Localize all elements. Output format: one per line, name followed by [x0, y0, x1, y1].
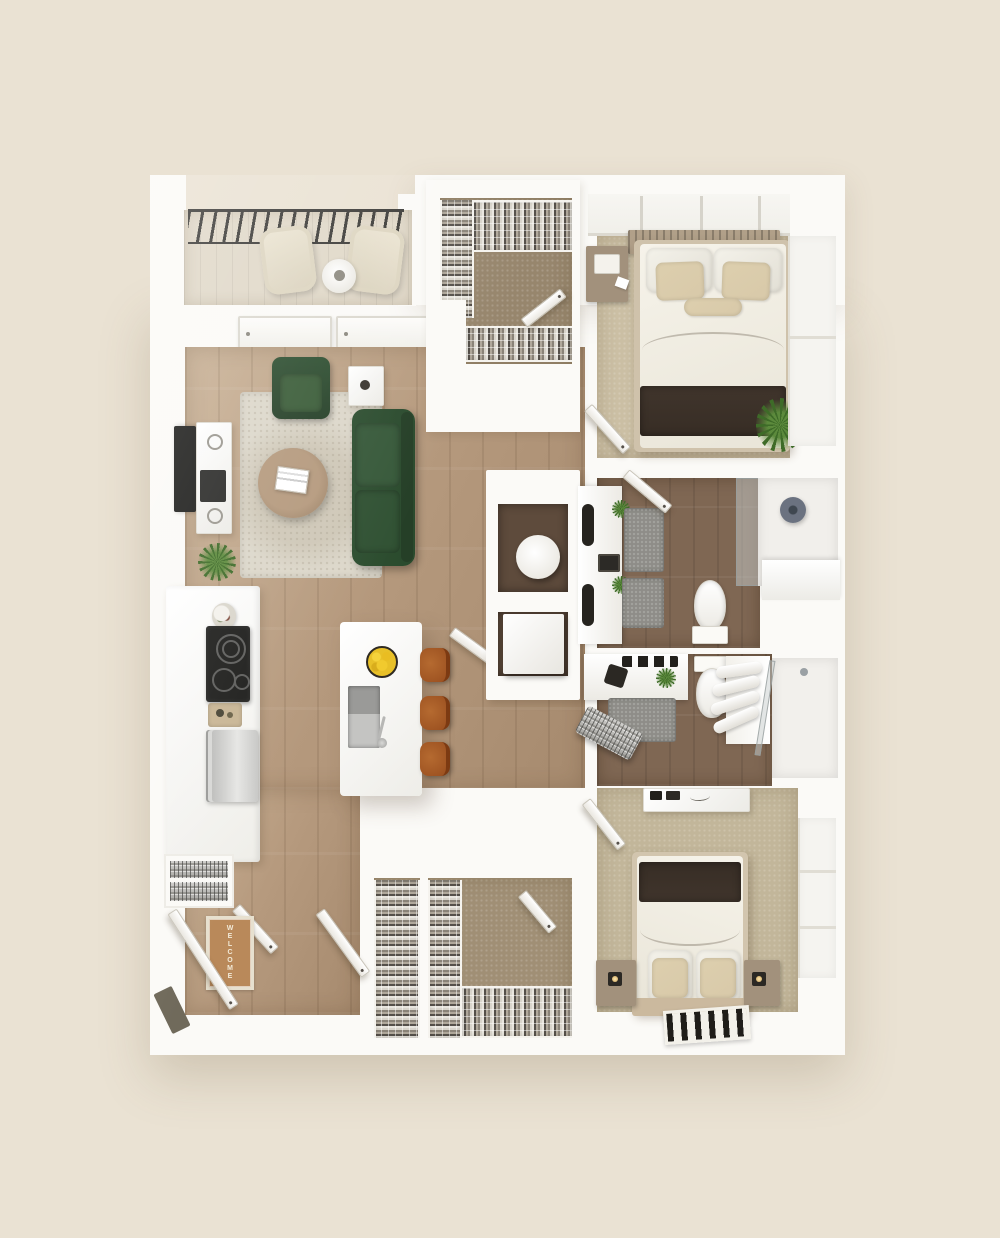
armchair-cushion	[280, 374, 322, 412]
bath-bottom-bottles	[622, 656, 678, 667]
sofa-cushion-top	[355, 423, 400, 487]
bath-bottom-plant	[656, 668, 676, 688]
sofa-cushion-bottom	[355, 490, 400, 553]
nightstand-top-tray	[594, 254, 620, 274]
living-plant	[198, 543, 236, 581]
floor-plan-render: WELCOME	[0, 0, 1000, 1238]
shower-top-head	[780, 497, 806, 523]
island-faucet-head	[377, 738, 387, 748]
console-speaker-bottom	[207, 508, 223, 524]
bath-top-toilet-bowl	[694, 580, 726, 630]
console-shelf-items	[200, 470, 226, 502]
bed-top-pillow-beige-left	[655, 261, 704, 301]
dresser-item-1	[650, 791, 662, 800]
shower-top-glass	[736, 478, 760, 586]
balcony-chair-right	[344, 224, 406, 296]
bar-stool-2	[420, 696, 450, 730]
closet-bottom-rack-bottom	[462, 986, 572, 1038]
bedroom-bottom-bay-sill-1	[798, 870, 836, 873]
pantry-shelf-top	[170, 861, 228, 878]
cutting-board-items	[216, 709, 224, 717]
closet-top-wall-bump	[426, 300, 466, 364]
fruit-bowl	[366, 646, 398, 678]
nook-round-table	[516, 535, 560, 579]
bed-top-lumbar-pillow	[684, 298, 742, 316]
tv	[174, 426, 196, 512]
bath-top-toilet-tank	[692, 626, 728, 644]
pantry-shelf-bottom	[170, 882, 228, 901]
bed-top-pillow-beige-right	[721, 261, 770, 301]
cooktop-burner-medium	[212, 668, 236, 692]
lamp-left	[608, 972, 622, 986]
living-window-left	[238, 316, 332, 351]
shower-bottom-floor	[772, 658, 838, 778]
bedroom-top-bay-sill	[788, 336, 836, 339]
closet-top-rack-bottom	[466, 326, 572, 362]
bar-stool-1	[420, 648, 450, 682]
balcony-table-decor	[334, 270, 345, 281]
side-table-decor	[360, 380, 370, 390]
bedroom-bottom-rug	[663, 1005, 751, 1045]
bedroom-top-window-bay	[788, 236, 836, 446]
nook-cabinet	[503, 614, 564, 674]
welcome-mat-text: WELCOME	[227, 925, 234, 981]
wall-pillar-top-left	[150, 175, 186, 305]
bath-top-faucet-1	[582, 504, 594, 546]
bedroom-bottom-bay-sill-2	[798, 926, 836, 929]
coffee-table-magazine	[274, 466, 309, 494]
sofa-backrest	[401, 412, 413, 562]
bed-bottom-pillow-beige-left	[652, 958, 688, 998]
shower-top-bench	[762, 560, 840, 600]
lamp-right	[752, 972, 766, 986]
console-speaker-top	[207, 434, 223, 450]
closet-top-rack-top	[462, 200, 572, 252]
bedroom-bottom-window-bay	[798, 818, 836, 978]
bath-top-tray	[598, 554, 620, 572]
closet-bottom-rack-middle	[428, 880, 462, 1038]
closet-bottom-rack-left	[374, 880, 420, 1038]
bar-stool-3	[420, 742, 450, 776]
bed-bottom-throw-blanket	[639, 862, 741, 902]
bath-top-mat-1	[624, 508, 664, 572]
bed-bottom-pillow-beige-right	[700, 958, 736, 998]
shower-bottom-fixture	[800, 668, 808, 676]
island-sink	[348, 686, 380, 748]
bath-top-mat-2	[622, 578, 664, 628]
living-window-right	[336, 316, 428, 351]
wall-band-hall	[360, 788, 586, 846]
cooktop-burner-large	[216, 634, 246, 664]
closet-bottom-divider	[420, 878, 428, 1038]
dresser-item-2	[666, 791, 680, 800]
refrigerator	[206, 730, 258, 802]
cooktop-burner-small	[234, 674, 250, 690]
balcony-chair-left	[258, 224, 318, 296]
bath-top-faucet-2	[582, 584, 594, 626]
cutting-board	[208, 703, 242, 727]
